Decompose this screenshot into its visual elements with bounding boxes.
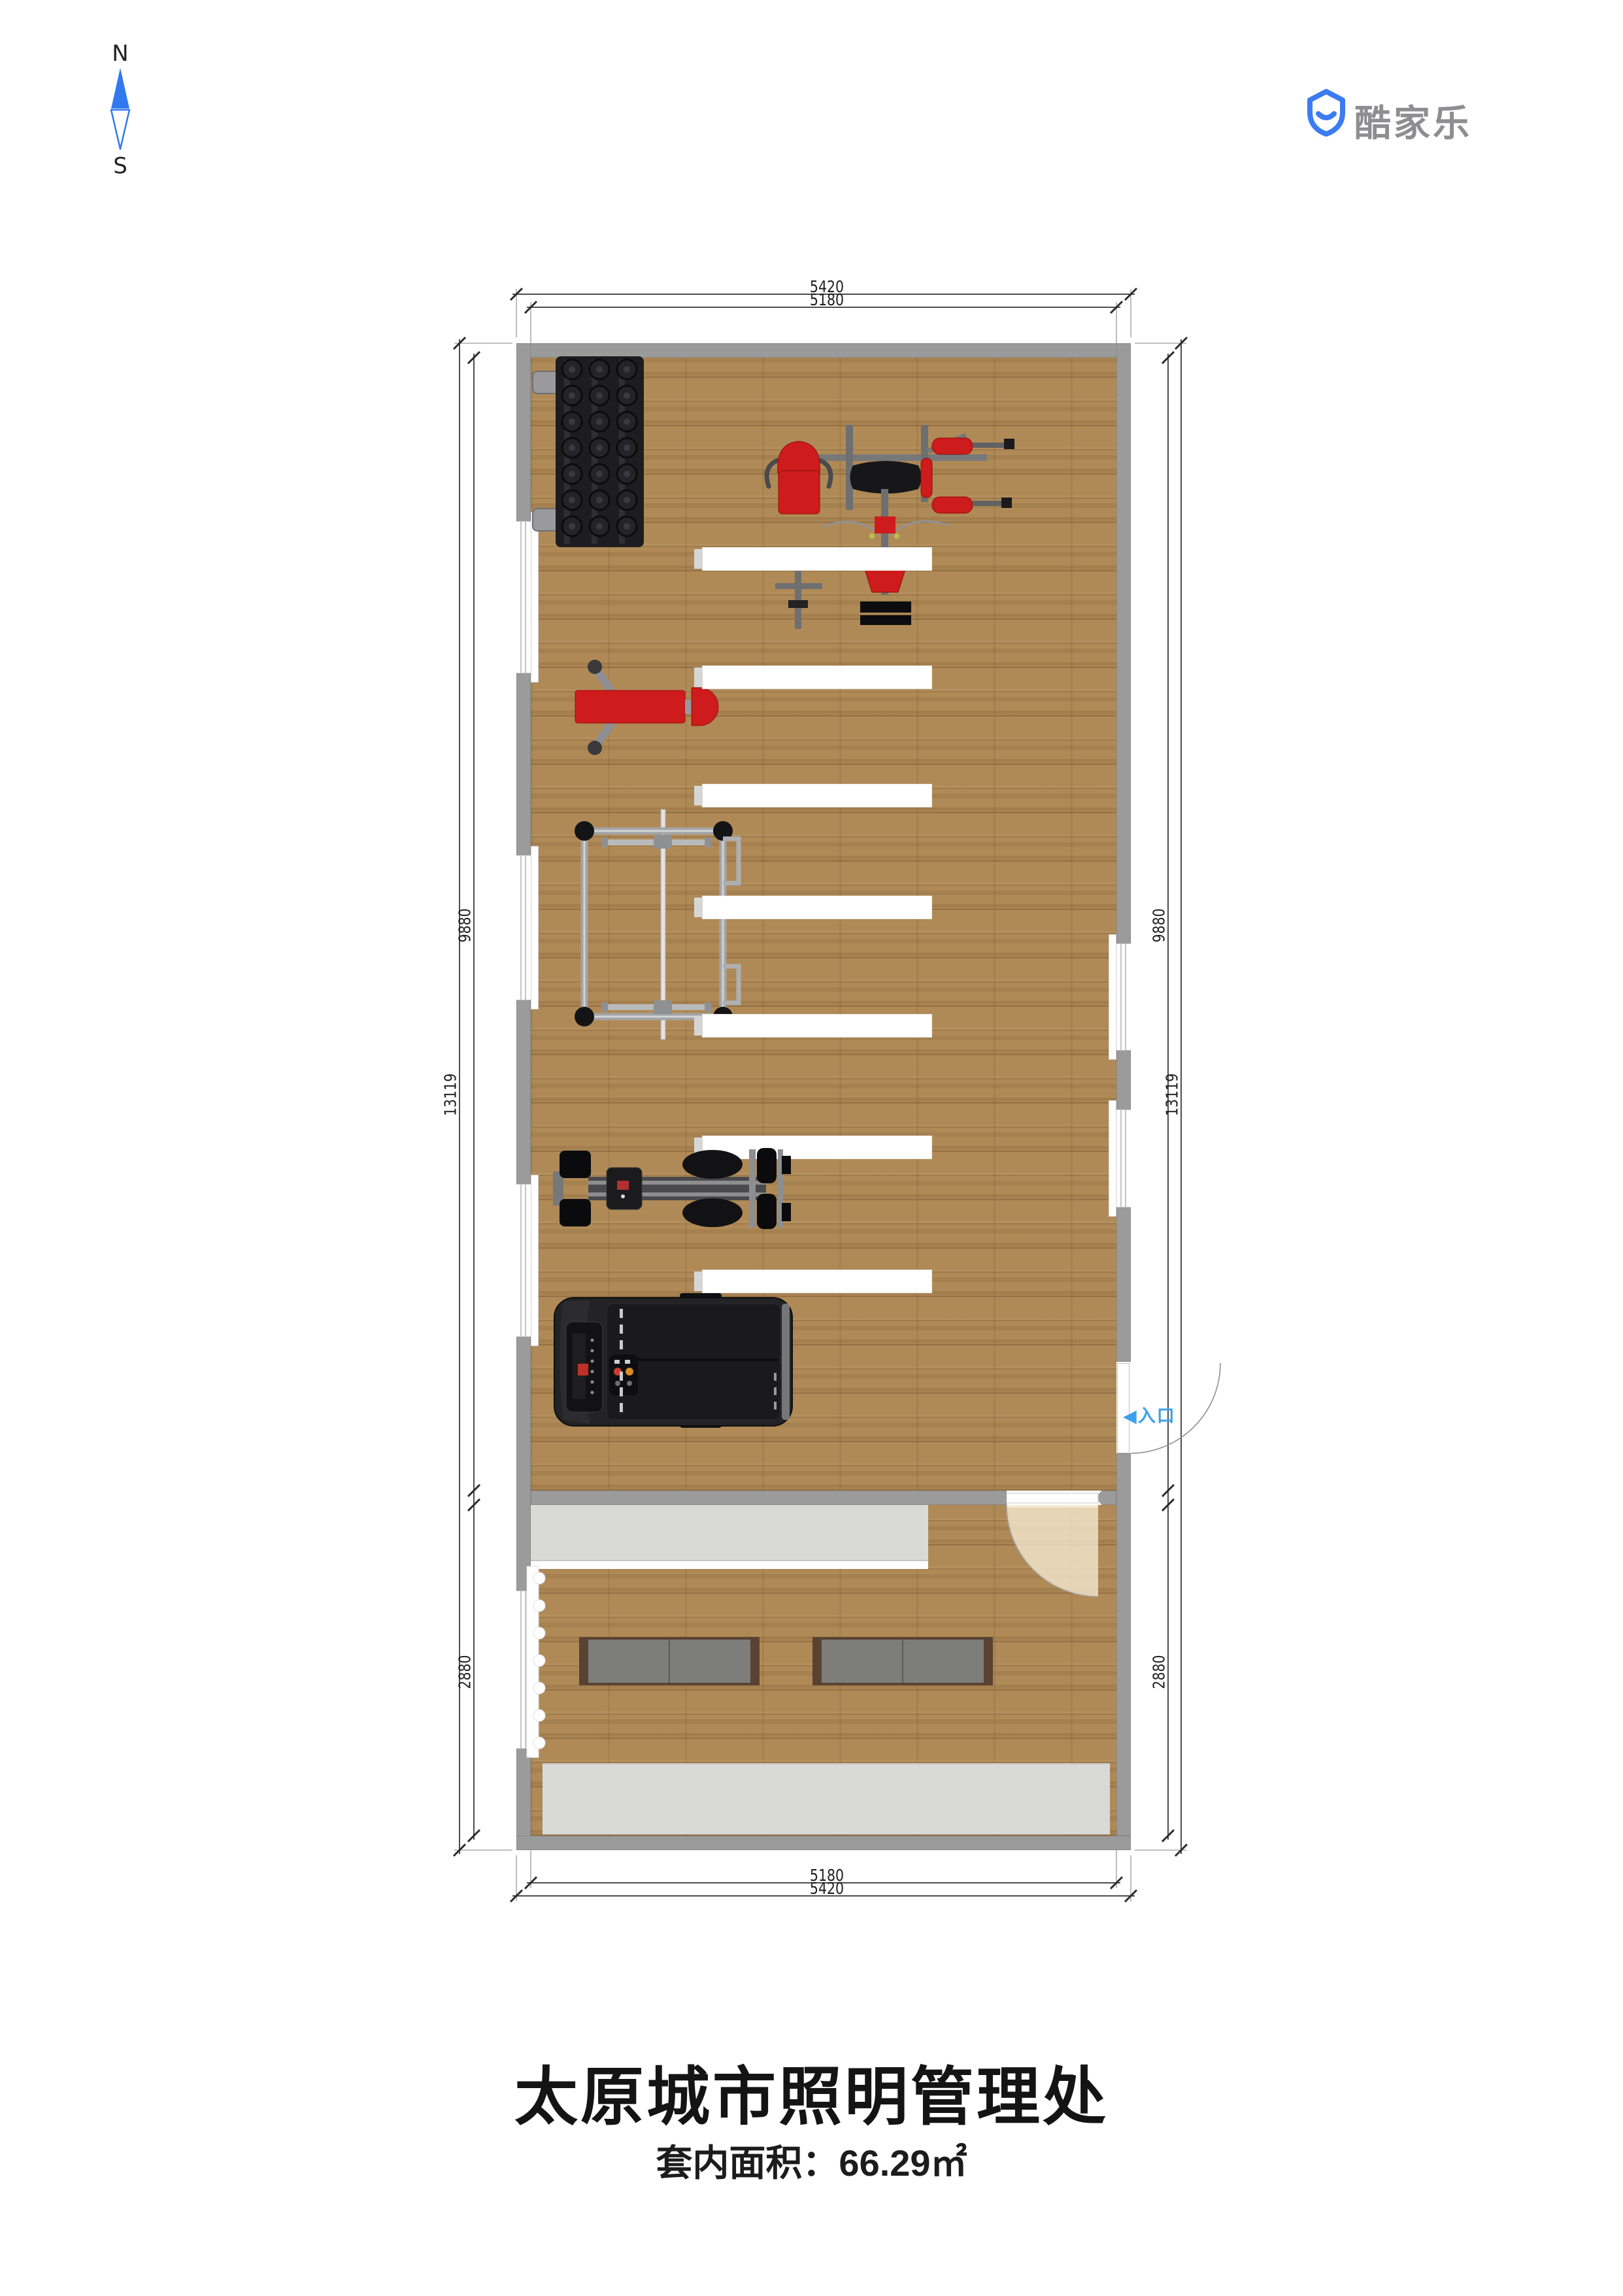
wall-right-upper: [1116, 343, 1131, 1362]
radiator: [523, 1566, 549, 1757]
ceiling-light-5: [703, 1015, 931, 1037]
dumbbell-rack: [526, 353, 647, 549]
ceiling-light-3: [703, 785, 931, 807]
counter-edge: [531, 1561, 928, 1569]
entrance-label: ◀入口: [1123, 1402, 1176, 1427]
dim-right-lower: 2880: [1150, 1629, 1169, 1715]
window-right-1-sill: [1109, 934, 1116, 1060]
wall-bottom: [516, 1836, 1131, 1850]
dim-left-outer: 13119: [441, 1052, 460, 1138]
multi-gym-machine: [755, 417, 1016, 633]
counter: [531, 1505, 928, 1561]
window-left-3: [516, 1184, 531, 1337]
locker-bench-1: [579, 1637, 760, 1685]
entrance-arrow-icon: ◀: [1123, 1406, 1138, 1426]
dim-bottom-outer: 5420: [784, 1879, 869, 1898]
window-left-3-sill: [531, 1175, 539, 1346]
ceiling-light-7: [703, 1270, 931, 1292]
window-right-2: [1116, 1109, 1131, 1207]
dim-left-lower: 2880: [456, 1629, 475, 1715]
plan-title: 太原城市照明管理处: [0, 2045, 1623, 2137]
window-right-1: [1116, 943, 1131, 1051]
power-rack: [574, 805, 745, 1049]
ceiling-light-1: [703, 548, 931, 570]
ceiling-light-4: [703, 896, 931, 919]
wall-right-lower: [1116, 1453, 1131, 1836]
dim-top-inner: 5180: [784, 290, 869, 309]
exercise-bike: [549, 1143, 791, 1234]
dim-right-upper: 9880: [1150, 883, 1169, 968]
interior-door: [1004, 1488, 1103, 1600]
floor-platform: [543, 1763, 1110, 1834]
treadmill: [549, 1291, 797, 1432]
window-left-2: [516, 855, 531, 1000]
floorplan-page: N S 酷家乐: [0, 0, 1623, 2296]
ceiling-light-2: [703, 666, 931, 688]
dim-left-upper: 9880: [456, 883, 475, 968]
dim-right-outer: 13119: [1163, 1052, 1182, 1138]
locker-bench-2: [812, 1637, 993, 1685]
wall-partition: [531, 1491, 1007, 1505]
plan-area-label: 套内面积：66.29㎡: [0, 2134, 1623, 2187]
entrance-text: 入口: [1138, 1406, 1176, 1426]
window-left-2-sill: [531, 846, 539, 1009]
window-right-2-sill: [1109, 1100, 1116, 1217]
